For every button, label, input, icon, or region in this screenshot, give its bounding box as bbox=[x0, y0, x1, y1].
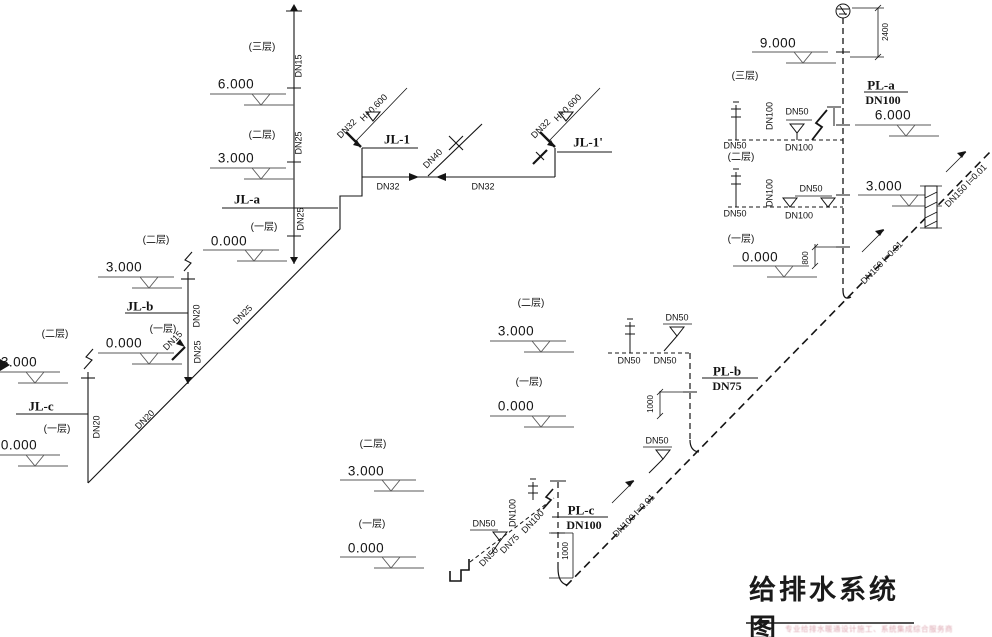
fixture-trap-icon bbox=[731, 102, 741, 140]
pipe-break-icon bbox=[84, 349, 93, 369]
elevation-label: 0.000 bbox=[211, 234, 247, 248]
squat-toilet-icon bbox=[450, 559, 469, 581]
pipe-size-label: DN25 bbox=[194, 340, 203, 363]
elevation-label: 3.000 bbox=[866, 179, 902, 193]
pipe-size-label: DN32 bbox=[471, 183, 494, 192]
dimension-label: 800 bbox=[802, 251, 810, 264]
floor-drain-icon bbox=[790, 124, 804, 140]
floor-label: (二层) bbox=[518, 299, 545, 309]
pipe-size-label: DN100 bbox=[509, 499, 518, 527]
floor-label: (三层) bbox=[249, 43, 276, 53]
elevation-label: 0.000 bbox=[106, 336, 142, 350]
elevation-label: 3.000 bbox=[106, 260, 142, 274]
pipe-size-label: DN50 bbox=[723, 142, 746, 151]
elevation-label: 0.000 bbox=[742, 250, 778, 264]
elevation-label: 3.000 bbox=[1, 355, 37, 369]
floor-label: (一层) bbox=[728, 235, 755, 245]
pipe-size-label: DN100 bbox=[766, 102, 775, 130]
floor-label: (二层) bbox=[249, 131, 276, 141]
elevation-label: 0.000 bbox=[348, 541, 384, 555]
elevation-label: 9.000 bbox=[760, 36, 796, 50]
riser-size-label: DN100 bbox=[566, 519, 601, 531]
floor-drain-icon bbox=[821, 198, 835, 207]
floor-label: (一层) bbox=[251, 223, 278, 233]
trap-zigzag-icon bbox=[543, 489, 553, 509]
drawing-canvas: (三层) DN15 6.000 (二层) DN25 3.000 JL-a DN2… bbox=[0, 0, 992, 637]
floor-label: (三层) bbox=[732, 72, 759, 82]
elevation-label: 3.000 bbox=[498, 324, 534, 338]
floor-drain-icon bbox=[783, 198, 797, 207]
floor-label: (二层) bbox=[728, 153, 755, 163]
pipe-size-label: DN50 bbox=[799, 185, 822, 194]
dim-2400 bbox=[850, 8, 884, 57]
fixture-trap-icon bbox=[625, 319, 635, 353]
squat-toilet-icon bbox=[812, 110, 827, 140]
pipe-size-label: DN15 bbox=[295, 54, 304, 77]
riser-name-plb: PL-b bbox=[713, 365, 741, 378]
pipe-size-label: DN50 bbox=[645, 437, 668, 446]
dimension-label: 1000 bbox=[647, 395, 655, 413]
pipe-break-icon bbox=[184, 252, 192, 271]
fixture-trap-icon bbox=[528, 479, 538, 500]
supply-flow-arrows bbox=[0, 4, 555, 384]
pipe-size-label: DN50 bbox=[653, 357, 676, 366]
pipe-size-label: DN20 bbox=[193, 304, 202, 327]
riser-name-jl1p: JL-1' bbox=[573, 136, 603, 149]
elevation-label: 3.000 bbox=[218, 151, 254, 165]
pipe-size-label: DN25 bbox=[297, 207, 306, 230]
pipe-size-label: DN100 bbox=[785, 212, 813, 221]
riser-name-plc: PL-c bbox=[568, 504, 595, 517]
floor-label: (一层) bbox=[516, 378, 543, 388]
floor-drain-icon bbox=[649, 450, 670, 473]
floor-label: (一层) bbox=[44, 425, 71, 435]
drain-piping bbox=[470, 18, 990, 586]
valve-icon bbox=[449, 136, 463, 150]
riser-size-label: DN75 bbox=[712, 380, 741, 392]
dim-800 bbox=[815, 244, 841, 266]
dim-1000-plb bbox=[660, 391, 688, 416]
floor-label: (二层) bbox=[143, 236, 170, 246]
dimension-label: 2400 bbox=[882, 23, 890, 41]
pipe-size-label: DN50 bbox=[472, 520, 495, 529]
elevation-label: 0.000 bbox=[498, 399, 534, 413]
floor-label: (一层) bbox=[359, 520, 386, 530]
dimension-label: 1000 bbox=[562, 542, 570, 560]
pipe-size-label: DN25 bbox=[295, 131, 304, 154]
pipe-size-label: DN50 bbox=[723, 210, 746, 219]
pipe-linework bbox=[0, 0, 992, 637]
watermark: 专业给排水暖通设计施工、系统集成综合服务商 bbox=[785, 624, 953, 635]
riser-name-jlb: JL-b bbox=[127, 300, 154, 313]
pipe-size-label: DN100 bbox=[766, 179, 775, 207]
riser-name-jlc: JL-c bbox=[28, 400, 53, 413]
pipe-size-label: DN32 bbox=[376, 183, 399, 192]
floor-drain-icon bbox=[664, 327, 684, 351]
elevation-label: 0.000 bbox=[1, 438, 37, 452]
elevation-label: 6.000 bbox=[875, 108, 911, 122]
floor-label: (二层) bbox=[360, 440, 387, 450]
supply-main-diagonal bbox=[88, 177, 362, 483]
pipe-size-label: DN50 bbox=[617, 357, 640, 366]
pipe-size-label: DN50 bbox=[665, 314, 688, 323]
fixture-trap-icon bbox=[731, 169, 741, 207]
riser-name-pla: PL-a bbox=[867, 79, 894, 92]
riser-size-label: DN100 bbox=[865, 94, 900, 106]
pipe-size-label: DN50 bbox=[785, 108, 808, 117]
floor-label: (二层) bbox=[42, 330, 69, 340]
pipe-size-label: DN100 bbox=[785, 144, 813, 153]
riser-name-jl1: JL-1 bbox=[384, 133, 410, 146]
elevation-label: 3.000 bbox=[348, 464, 384, 478]
elevation-label: 6.000 bbox=[218, 77, 254, 91]
pipe-size-label: DN20 bbox=[93, 415, 102, 438]
riser-name-jla: JL-a bbox=[234, 193, 260, 206]
